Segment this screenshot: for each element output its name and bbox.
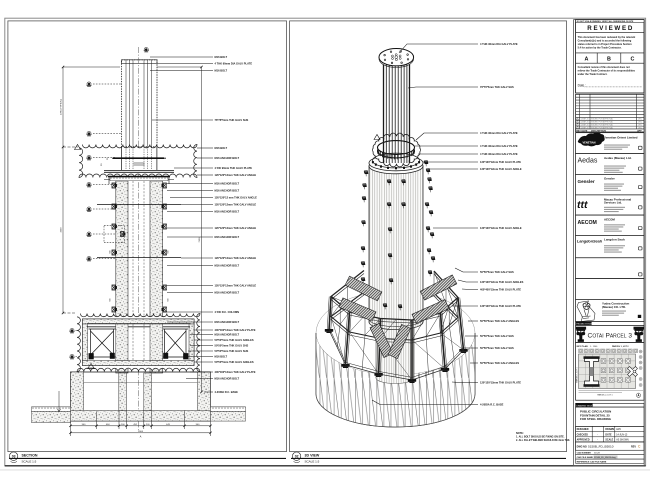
svg-text:REFERENCE CAD FILE NAME: REFERENCE CAD FILE NAME — [577, 460, 607, 463]
svg-text:4-MAY-15: 4-MAY-15 — [581, 118, 589, 121]
svg-text:APPROVED: APPROVED — [577, 439, 590, 442]
svg-text:LangdonSeah: LangdonSeah — [577, 240, 603, 244]
svg-text:DO NOT SCALE DRAWING. VERIFY A: DO NOT SCALE DRAWING. VERIFY ALL DIMENSI… — [577, 20, 634, 23]
svg-text:SECTION: SECTION — [22, 454, 38, 458]
svg-text:NOTE:: NOTE: — [516, 432, 524, 435]
svg-text:120*120*12mm THK GALV ANGLE: 120*120*12mm THK GALV ANGLE — [480, 167, 522, 171]
svg-text:120*120*12mm THK GALV ANGLES: 120*120*12mm THK GALV ANGLES — [480, 280, 524, 284]
svg-text:4-20DIA R.C. BASE: 4-20DIA R.C. BASE — [215, 390, 239, 394]
svg-text:120*120*12mm THK GALV ANGLE: 120*120*12mm THK GALV ANGLE — [215, 284, 257, 288]
svg-text:M16 ANCHOR BOLT: M16 ANCHOR BOLT — [215, 377, 240, 381]
svg-text:120*120*12mm THK GALV ANGLE: 120*120*12mm THK GALV ANGLE — [480, 226, 522, 230]
svg-text:SCALE: SCALE — [605, 439, 613, 442]
svg-text:DRAWN: DRAWN — [605, 428, 614, 431]
svg-text:M16 BOLT: M16 BOLT — [215, 146, 228, 150]
svg-text:PARCEL 2, LOT 1: PARCEL 2, LOT 1 — [597, 393, 612, 396]
svg-text:(Macau) CO. LTD.: (Macau) CO. LTD. — [602, 305, 626, 309]
svg-text:ISSUED FOR APPROVAL: ISSUED FOR APPROVAL — [591, 118, 613, 121]
svg-text:4 THK 90mm DIA GALV PLATE: 4 THK 90mm DIA GALV PLATE — [480, 42, 518, 46]
svg-text:50*50*5mm THK GALV SHS: 50*50*5mm THK GALV SHS — [215, 349, 249, 353]
svg-text:AS SHOWN: AS SHOWN — [616, 439, 629, 442]
svg-text:400*400*12mm THK GALV PLATE: 400*400*12mm THK GALV PLATE — [215, 328, 256, 332]
svg-text:DESCRIPTION: DESCRIPTION — [591, 131, 606, 133]
svg-text:LWC: LWC — [638, 122, 643, 124]
svg-text:4-MAY-15: 4-MAY-15 — [581, 121, 589, 124]
svg-text:M16 BOLT: M16 BOLT — [215, 355, 228, 359]
svg-text:DESIGNED: DESIGNED — [577, 429, 589, 431]
svg-text:M16 ANCHOR BOLT: M16 ANCHOR BOLT — [215, 333, 240, 337]
svg-text:120*120*12mm THK GALV ANGLE: 120*120*12mm THK GALV ANGLE — [215, 256, 257, 260]
svg-text:Services Ltd.: Services Ltd. — [604, 201, 622, 205]
svg-text:status referred to in Proj: status referred to in Project Procedure … — [578, 43, 633, 46]
svg-text:under the Trade Contract.: under the Trade Contract. — [578, 73, 608, 76]
svg-text:R E V I E W E D: R E V I E W E D — [587, 25, 633, 32]
svg-text:M16 BOLT: M16 BOLT — [215, 69, 228, 73]
svg-text:50*50*5mm THK GALV SHS: 50*50*5mm THK GALV SHS — [480, 334, 514, 338]
svg-text:14-JUN-15: 14-JUN-15 — [616, 434, 628, 436]
svg-text:M16 ANCHOR BOLT: M16 ANCHOR BOLT — [215, 320, 240, 324]
svg-text:M16 ANCHOR BOLT: M16 ANCHOR BOLT — [215, 264, 240, 268]
svg-text:Consultant review of this: Consultant review of this document does … — [578, 66, 630, 69]
svg-text:76*76*5mm THK GALV SHS: 76*76*5mm THK GALV SHS — [215, 118, 249, 122]
svg-text:120*120*12mm THK GALV PLATE: 120*120*12mm THK GALV PLATE — [480, 160, 521, 164]
svg-text:M16 ANCHOR BOLT: M16 ANCHOR BOLT — [215, 156, 240, 160]
svg-text:A: A — [584, 56, 588, 62]
svg-text:Aedas (Macau) Ltd.: Aedas (Macau) Ltd. — [604, 156, 632, 160]
svg-text:400*400*12mm THK GALV PLATE: 400*400*12mm THK GALV PLATE — [480, 288, 521, 292]
svg-text:5150B_FD_B5010.dwg: 5150B_FD_B5010.dwg — [594, 457, 616, 459]
svg-text:4 THK 90mm DIA GALV PLATE: 4 THK 90mm DIA GALV PLATE — [480, 131, 518, 135]
svg-text:76*76*5mm THK GALV SHS: 76*76*5mm THK GALV SHS — [480, 85, 514, 89]
svg-text:50*50*5mm THK GALV SHS: 50*50*5mm THK GALV SHS — [215, 344, 249, 348]
svg-text:2064: 2064 — [138, 431, 144, 433]
svg-text:50*50*5mm THK GALV ANGLES: 50*50*5mm THK GALV ANGLES — [215, 360, 254, 364]
svg-text:This document has been reviewe: This document has been reviewed by the r… — [578, 36, 636, 39]
svg-text:51528: 51528 — [594, 453, 601, 455]
svg-text:Gensler: Gensler — [604, 177, 616, 181]
svg-text:1 : 1500: 1 : 1500 — [590, 346, 598, 348]
svg-text:ttt: ttt — [577, 199, 588, 211]
svg-text:ISSUED FOR APPROVAL: ISSUED FOR APPROVAL — [591, 121, 613, 124]
svg-text:M16 ANCHOR BOLT: M16 ANCHOR BOLT — [215, 182, 240, 186]
svg-text:120*120*12mm THK GALV ANGLE: 120*120*12mm THK GALV ANGLE — [215, 173, 257, 177]
svg-text:Consultant(s)(s) and is acc: Consultant(s)(s) and is accorded the fol… — [578, 39, 632, 42]
svg-text:COTAI PARCEL 3: COTAI PARCEL 3 — [588, 332, 633, 339]
svg-text:REV: REV — [576, 131, 581, 133]
svg-text:CAD FILE NAME: CAD FILE NAME — [577, 456, 594, 459]
svg-text:FOR STEEL DRAWING: FOR STEEL DRAWING — [580, 417, 612, 421]
svg-text:4 THK 90mm DIA GALV PLATE: 4 THK 90mm DIA GALV PLATE — [480, 144, 518, 148]
svg-text:120*120*12mm THK GALV ANGLE: 120*120*12mm THK GALV ANGLE — [215, 203, 257, 207]
svg-text:Aedas: Aedas — [578, 158, 598, 165]
svg-text:4-20DIA R.C. BASE: 4-20DIA R.C. BASE — [480, 403, 504, 407]
svg-text:REV: REV — [631, 445, 636, 448]
svg-text:4 500 R.C. COLUMN: 4 500 R.C. COLUMN — [215, 310, 240, 314]
svg-text:4-MAY-15: 4-MAY-15 — [581, 123, 589, 126]
svg-text:120*120*12 mm THK GALV ANGLE: 120*120*12 mm THK GALV ANGLE — [215, 196, 258, 200]
svg-text:50*50*5mm THK GALV ANGLES: 50*50*5mm THK GALV ANGLES — [215, 338, 254, 342]
svg-text:M16 ANCHOR BOLT: M16 ANCHOR BOLT — [215, 235, 240, 239]
svg-text:M16 ANCHOR BOLT: M16 ANCHOR BOLT — [215, 210, 240, 214]
svg-text:M16 ANCHOR BOLT: M16 ANCHOR BOLT — [215, 291, 240, 295]
svg-text:CHECKED: CHECKED — [577, 434, 589, 436]
svg-text:5.4 for action by the Tra: 5.4 for action by the Trade Contractor. — [578, 47, 622, 50]
svg-text:4 THK 90mm DIA GALV PLATE: 4 THK 90mm DIA GALV PLATE — [480, 152, 518, 156]
svg-text:relieve the Trade Contractor: relieve the Trade Contractor of its resp… — [578, 69, 636, 72]
svg-text:400*400*12mm THK GALV PLATE: 400*400*12mm THK GALV PLATE — [215, 370, 256, 374]
svg-text:DATE: DATE — [605, 433, 612, 436]
svg-text:AECOM: AECOM — [604, 217, 615, 221]
svg-text:PARCEL 1, LOT 2: PARCEL 1, LOT 2 — [612, 345, 629, 348]
svg-text:50*50*5mm THK GALV SHS: 50*50*5mm THK GALV SHS — [480, 270, 514, 274]
svg-text:B: B — [607, 56, 611, 62]
svg-text:4 500 90mm THK GALV PLATE: 4 500 90mm THK GALV PLATE — [215, 166, 253, 170]
svg-text:50*50*5mm THK GALV ANGLES: 50*50*5mm THK GALV ANGLES — [480, 319, 519, 323]
svg-text:DWG NO: DWG NO — [577, 445, 587, 448]
svg-text:Gensler: Gensler — [578, 179, 595, 184]
svg-text:3300: 3300 — [61, 227, 63, 233]
svg-text:APP: APP — [637, 130, 642, 133]
svg-text:M16 BOLT: M16 BOLT — [215, 55, 228, 59]
svg-text:ISSUED FOR APPROVAL: ISSUED FOR APPROVAL — [591, 123, 613, 126]
svg-text:120*120*12mm THK GALV PLATE: 120*120*12mm THK GALV PLATE — [480, 304, 521, 308]
svg-text:1785 (TYP B.N.): 1785 (TYP B.N.) — [61, 99, 63, 115]
svg-text:LWC: LWC — [616, 429, 621, 431]
svg-text:1. ALL BOLT SHOULD BE FIXING O: 1. ALL BOLT SHOULD BE FIXING ON SITE. — [516, 436, 565, 439]
svg-text:50*50*5mm THK GALV SHS: 50*50*5mm THK GALV SHS — [480, 346, 514, 350]
svg-text:SCALE 1:5: SCALE 1:5 — [305, 460, 320, 464]
svg-text:KEY PLAN: KEY PLAN — [577, 345, 588, 348]
svg-text:120*120*12mm THK GALV ANGLE: 120*120*12mm THK GALV ANGLE — [215, 226, 257, 230]
svg-text:LWC: LWC — [638, 119, 643, 121]
svg-text:5150B_FD_B5010: 5150B_FD_B5010 — [588, 445, 614, 449]
svg-text:120*120*12mm THK GALV PLATE: 120*120*12mm THK GALV PLATE — [480, 381, 521, 385]
svg-text:50*50*5mm THK GALV ANGLES: 50*50*5mm THK GALV ANGLES — [480, 361, 519, 365]
svg-text:4 THK 90mm DIA GALV PLATE: 4 THK 90mm DIA GALV PLATE — [215, 62, 253, 66]
svg-text:LWC: LWC — [638, 124, 643, 126]
svg-text:VENETIAN: VENETIAN — [582, 140, 595, 144]
svg-text:C: C — [630, 56, 634, 62]
svg-text:Venetian Orient Limited: Venetian Orient Limited — [604, 135, 638, 139]
svg-text:PARCEL 1, LOT 1: PARCEL 1, LOT 1 — [576, 367, 579, 382]
svg-text:DATE: DATE — [582, 130, 588, 133]
svg-text:M16 ANCHOR BOLT: M16 ANCHOR BOLT — [215, 189, 240, 193]
svg-text:7100: 7100 — [199, 237, 201, 243]
svg-text:AECOM: AECOM — [578, 220, 597, 226]
svg-text:3D VIEW: 3D VIEW — [305, 454, 320, 458]
svg-text:Langdon Seah: Langdon Seah — [604, 238, 625, 242]
svg-text:CAD NUMBER: CAD NUMBER — [577, 452, 592, 455]
svg-text:2. ALL FILLET WELDED SHOULD BE: 2. ALL FILLET WELDED SHOULD BE 3mm THK. — [516, 439, 571, 442]
svg-text:SCALE 1:5: SCALE 1:5 — [22, 460, 37, 464]
